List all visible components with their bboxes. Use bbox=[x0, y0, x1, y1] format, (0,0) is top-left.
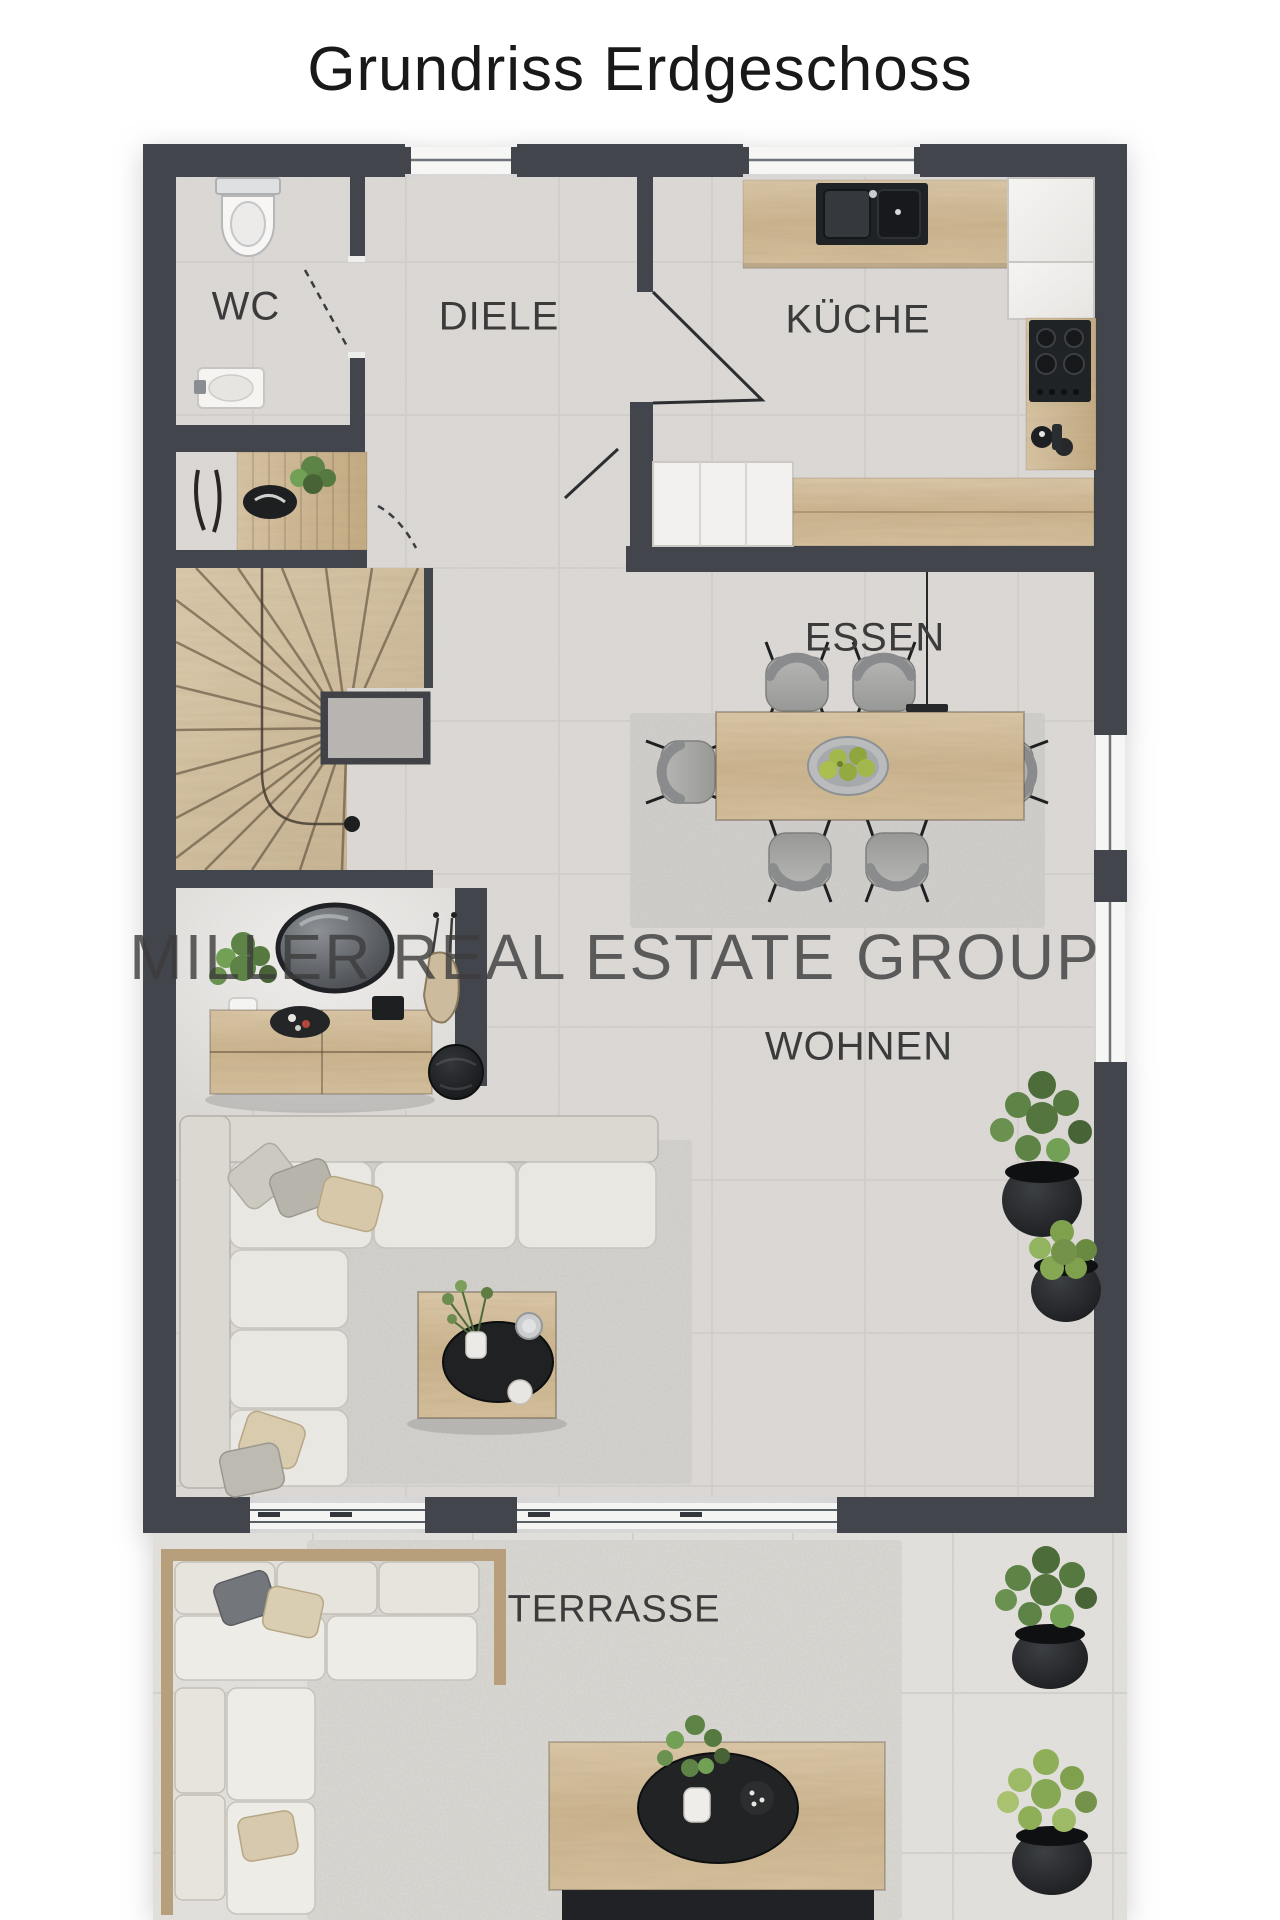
room-label-wohnen: WOHNEN bbox=[765, 1025, 953, 1070]
outdoor-tray bbox=[638, 1753, 798, 1863]
stair-south-wall bbox=[143, 870, 433, 888]
outdoor-vase-white bbox=[684, 1788, 710, 1822]
outdoor-vase-dark bbox=[740, 1781, 774, 1815]
washbasin bbox=[194, 368, 264, 408]
decor-tray bbox=[270, 1006, 330, 1038]
room-label-diele: DIELE bbox=[439, 295, 560, 340]
room-label-wc: WC bbox=[212, 285, 281, 330]
double-sink bbox=[816, 183, 928, 245]
window-right-1 bbox=[1096, 735, 1125, 850]
stair-east-edge bbox=[424, 568, 433, 688]
handrail-post bbox=[344, 816, 360, 832]
room-label-kueche: KÜCHE bbox=[785, 298, 930, 343]
room-label-essen: ESSEN bbox=[805, 616, 946, 661]
saucer bbox=[508, 1380, 532, 1404]
floorplan-page: Grundriss Erdgeschoss bbox=[0, 0, 1280, 1920]
outdoor-coffee-table bbox=[549, 1715, 885, 1920]
fruit-bowl bbox=[808, 737, 888, 795]
tall-cabinet-1 bbox=[1008, 178, 1094, 262]
stair-void bbox=[323, 693, 428, 763]
kitchen-south-wall bbox=[626, 546, 1127, 572]
tall-cabinet-2 bbox=[1008, 262, 1094, 319]
pouf bbox=[429, 1045, 483, 1099]
wc-wall-lower bbox=[350, 357, 365, 427]
room-label-terrasse: TERRASSE bbox=[508, 1589, 721, 1632]
page-title: Grundriss Erdgeschoss bbox=[0, 34, 1280, 105]
window-top-2 bbox=[743, 147, 920, 174]
decor-bowl bbox=[243, 485, 297, 519]
sliding-door-2 bbox=[517, 1503, 837, 1529]
decor-box bbox=[372, 996, 404, 1020]
sliding-door-1 bbox=[250, 1503, 425, 1529]
watermark: MILLER REAL ESTATE GROUP bbox=[115, 920, 1115, 994]
stair-north-wall bbox=[143, 550, 367, 568]
cooktop bbox=[1029, 320, 1091, 402]
kitchen-wall-stub bbox=[630, 402, 653, 546]
wc-south-wall bbox=[143, 425, 365, 452]
wc-wall-upper bbox=[350, 177, 365, 262]
coffee-table bbox=[407, 1280, 567, 1435]
window-top-1 bbox=[405, 147, 517, 174]
kitchen-wall-upper bbox=[637, 177, 653, 292]
